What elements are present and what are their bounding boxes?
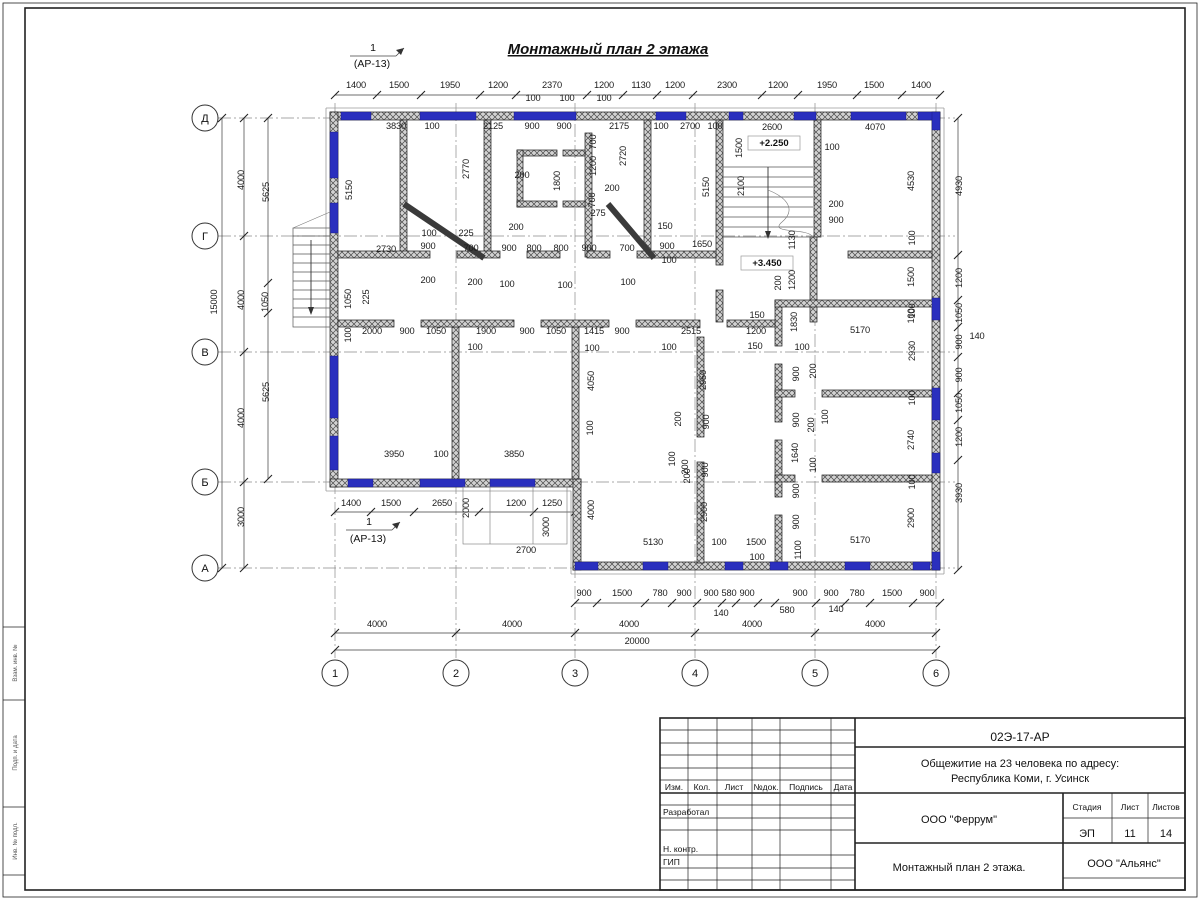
dim-label: 900 [954,368,964,383]
dim-label: 4000 [742,619,762,629]
dim-label: 100 [597,93,612,103]
dim-label: 900 [700,463,710,478]
frame-strip-label: Подп. и дата [13,735,19,771]
dim-label: 1200 [594,80,614,90]
dim-label: 100 [750,552,765,562]
dim-label: 2700 [516,545,536,555]
dim-label: 1130 [787,230,797,249]
dim-label: 2370 [542,80,562,90]
dim-label: 1500 [734,138,744,158]
dim-label: 900 [502,243,517,253]
dim-label: 4530 [906,171,916,191]
dim-label: 2650 [432,498,452,508]
dim-label: 200 [605,183,620,193]
dim-label: 1830 [789,312,799,332]
dim-label: 1400 [346,80,366,90]
dim-label: 900 [704,588,719,598]
dim-label: 200 [509,222,524,232]
dim-label: 200 [682,469,692,484]
dim-label: 4000 [586,500,596,520]
floor-plan-sheet: Взам. инв. № Подп. и дата Инв. № подл. М… [0,0,1200,900]
dim-label: 5170 [850,535,870,545]
dim-label: 200 [773,276,783,291]
dim-label: 3000 [541,517,551,537]
dim-label: 100 [712,537,727,547]
dim-label: 700 [464,243,479,253]
dim-label: 100 [825,142,840,152]
dim-label: 200 [808,364,818,379]
dim-label: 900 [577,588,592,598]
tb-row-gip: ГИП [663,857,680,867]
dim-label: 2175 [609,121,629,131]
dim-label: 1050 [954,393,964,413]
tb-project-line2: Республика Коми, г. Усинск [951,773,1089,785]
dim-label: 1800 [552,171,562,191]
dim-label: 100 [795,342,810,352]
window-segments [330,112,940,570]
dim-label: 1950 [440,80,460,90]
dim-label: 2000 [461,498,471,518]
dim-label: 900 [791,484,801,499]
dim-label: 1200 [954,268,964,288]
col-axis-label: 6 [933,668,939,680]
tb-row-developed: Разработал [663,807,709,817]
dim-label: 1050 [426,326,446,336]
dim-label: 900 [740,588,755,598]
drawing-title: Монтажный план 2 этажа [508,41,709,58]
dim-label: 1500 [389,80,409,90]
dim-label: 800 [554,243,569,253]
dim-label: 1500 [882,588,902,598]
dim-label: 2000 [362,326,382,336]
dim-label: 200 [673,412,683,427]
dim-label: 900 [791,515,801,530]
dim-label: 900 [793,588,808,598]
dim-label: 2900 [699,502,709,522]
section-marker-top: 1 (АР-13) [350,42,404,70]
dim-label: 900 [660,241,675,251]
dim-label: 2900 [906,508,916,528]
dim-label: 150 [748,341,763,351]
dim-label: 1050 [546,326,566,336]
dim-label: 4050 [586,371,596,391]
tb-client-org: ООО "Альянс" [1087,858,1161,870]
dim-label: 20000 [625,636,650,646]
dim-label: 100 [820,410,830,425]
dim-label: 200 [806,418,816,433]
dim-label: 4000 [502,619,522,629]
tb-sheet-value: 11 [1124,828,1135,840]
dim-label: 900 [615,326,630,336]
tb-sheet-title: Монтажный план 2 этажа. [893,862,1026,874]
col-axis-label: 3 [572,668,578,680]
dim-label: 1050 [260,292,270,312]
dim-label: 140 [829,604,844,614]
dim-label: 100 [585,343,600,353]
dim-label: 275 [591,208,606,218]
dim-label: 1500 [381,498,401,508]
dim-label: 1500 [612,588,632,598]
dim-label: 1100 [793,540,803,559]
dim-label: 580 [780,605,795,615]
section-marker-number: 1 [370,42,376,54]
dim-label: 1400 [341,498,361,508]
tb-col-list: Лист [725,782,744,792]
dim-label: 100 [654,121,669,131]
col-axis-label: 4 [692,668,698,680]
dim-label: 1200 [787,270,797,290]
dim-label: 100 [667,452,677,467]
dim-label: 900 [400,326,415,336]
dim-label: 200 [421,275,436,285]
dim-label: 5130 [643,537,663,547]
dim-label: 200 [468,277,483,287]
dim-label: 1050 [954,303,964,323]
dim-label: 2600 [762,122,782,132]
dim-label: 780 [653,588,668,598]
dim-label: 1640 [790,443,800,463]
dim-label: 150 [750,310,765,320]
dim-label: 2950 [698,370,708,390]
dim-label: 4000 [619,619,639,629]
walls [330,112,940,570]
dim-label: 900 [525,121,540,131]
frame-strip-label: Взам. инв. № [12,644,19,681]
dim-label: 15000 [209,290,219,315]
tb-col-ndok: №док. [754,782,779,792]
dim-label: 5625 [261,182,271,202]
dim-label: 200 [515,170,530,180]
section-marker-ref: (АР-13) [350,533,386,545]
dim-label: 2740 [906,430,916,450]
tb-col-izm: Изм. [665,782,683,792]
dim-label: 2300 [717,80,737,90]
dim-label: 1200 [768,80,788,90]
row-axis-label: Г [202,231,208,243]
dim-label: 2100 [736,176,746,196]
tb-stage-value: ЭП [1079,828,1095,840]
dim-label: 1950 [817,80,837,90]
dim-label: 900 [421,241,436,251]
tb-col-kol: Кол. [694,782,711,792]
dim-label: 5150 [344,180,354,200]
dim-label: 1200 [488,80,508,90]
dim-label: 900 [791,413,801,428]
dim-label: 1400 [911,80,931,90]
dim-label: 1500 [906,267,916,287]
col-axis-label: 2 [453,668,459,680]
dim-label: 100 [621,277,636,287]
tb-designer-org: ООО "Феррум" [921,814,997,826]
dim-label: 150 [658,221,673,231]
tb-sheets-value: 14 [1160,828,1172,840]
dim-label: 780 [850,588,865,598]
col-axis-label: 1 [332,668,338,680]
dim-label: 100 [907,304,917,319]
tb-sheet-label: Лист [1121,802,1140,812]
dim-label: 4000 [236,290,246,310]
dim-label: 5625 [261,382,271,402]
dim-label: 2770 [461,159,471,179]
dim-label: 4000 [367,619,387,629]
dimension-labels: 1400150019501200237012001130120023001200… [209,80,984,646]
tb-col-podpis: Подпись [789,782,823,792]
tb-sheets-label: Листов [1152,802,1180,812]
dim-label: 1130 [631,80,650,90]
dim-label: 900 [954,335,964,350]
level-value: +3.450 [752,258,781,269]
dim-label: 1200 [746,326,766,336]
dim-label: 200 [829,199,844,209]
dim-label: 900 [701,415,711,430]
dim-label: 2720 [618,146,628,166]
tb-col-data: Дата [834,782,853,792]
row-axis-label: А [201,563,209,575]
dim-label: 100 [468,342,483,352]
dim-label: 2730 [376,244,396,254]
dim-label: 900 [829,215,844,225]
dim-label: 5170 [850,325,870,335]
dim-label: 2125 [483,121,503,131]
dim-label: 1900 [476,326,496,336]
section-marker-ref: (АР-13) [354,58,390,70]
dim-label: 700 [587,193,597,208]
dim-label: 900 [824,588,839,598]
dim-label: 900 [557,121,572,131]
dim-label: 580 [722,588,737,598]
dim-label: 700 [588,135,598,150]
dim-label: 1200 [665,80,685,90]
dim-label: 4070 [865,122,885,132]
dim-label: 1200 [506,498,526,508]
level-mark-lower: +3.450 [741,256,793,270]
dim-label: 900 [520,326,535,336]
dim-label: 4000 [236,408,246,428]
dim-label: 4000 [865,619,885,629]
dim-label: 900 [677,588,692,598]
window-sill-lines [326,108,944,574]
dim-label: 3930 [954,483,964,503]
frame-strip-label: Инв. № подл. [12,822,19,860]
dim-label: 100 [558,280,573,290]
section-marker-bottom: 1 (АР-13) [346,516,400,545]
row-axis-label: Д [201,113,209,125]
title-block: Изм. Кол. Лист №док. Подпись Дата Разраб… [660,718,1185,890]
col-axis-label: 5 [812,668,818,680]
dim-label: 100 [907,231,917,246]
tb-row-ncontr: Н. контр. [663,844,698,854]
entrance-porch [463,487,567,544]
dim-label: 1650 [692,239,712,249]
dim-label: 100 [662,342,677,352]
dim-label: 1050 [343,289,353,309]
dim-label: 140 [970,331,985,341]
dim-label: 100 [422,228,437,238]
dim-label: 800 [527,243,542,253]
dim-label: 1415 [584,326,604,336]
tb-document-code: 02Э-17-АР [990,730,1049,744]
dim-label: 1500 [746,537,766,547]
row-axis-label: Б [201,477,208,489]
dim-label: 3850 [504,449,524,459]
dim-label: 3950 [384,449,404,459]
dim-label: 100 [585,421,595,436]
dim-label: 2930 [907,341,917,361]
tb-project-line1: Общежитие на 23 человека по адресу: [921,758,1119,770]
dim-label: 1250 [542,498,562,508]
dim-label: 700 [620,243,635,253]
dim-label: 1200 [588,156,598,176]
dim-label: 100 [560,93,575,103]
dim-label: 1500 [864,80,884,90]
dim-label: 100 [907,475,917,490]
dim-label: 1200 [954,427,964,447]
dim-label: 225 [459,228,474,238]
row-axis-label: В [201,347,208,359]
dim-label: 5150 [701,177,711,197]
dim-label: 100 [907,391,917,406]
level-mark-upper: +2.250 [748,136,800,150]
section-marker-number: 1 [366,516,372,528]
dim-label: 900 [791,367,801,382]
dim-label: 100 [808,458,818,473]
dim-label: 900 [582,243,597,253]
dim-label: 2700 [680,121,700,131]
tb-stage-label: Стадия [1073,802,1102,812]
dim-label: 140 [714,608,729,618]
level-value: +2.250 [759,138,788,149]
dim-label: 4000 [236,170,246,190]
exterior-stair [293,212,330,327]
dim-label: 3000 [236,507,246,527]
dim-label: 100 [500,279,515,289]
dim-label: 100 [343,328,353,343]
dim-label: 100 [425,121,440,131]
dim-label: 4930 [954,176,964,196]
dim-label: 2515 [681,326,701,336]
dim-label: 900 [920,588,935,598]
dim-label: 100 [526,93,541,103]
dim-label: 225 [361,290,371,305]
dim-label: 100 [662,255,677,265]
dim-label: 100 [434,449,449,459]
dim-label: 100 [708,121,723,131]
dim-label: 3830 [386,121,406,131]
